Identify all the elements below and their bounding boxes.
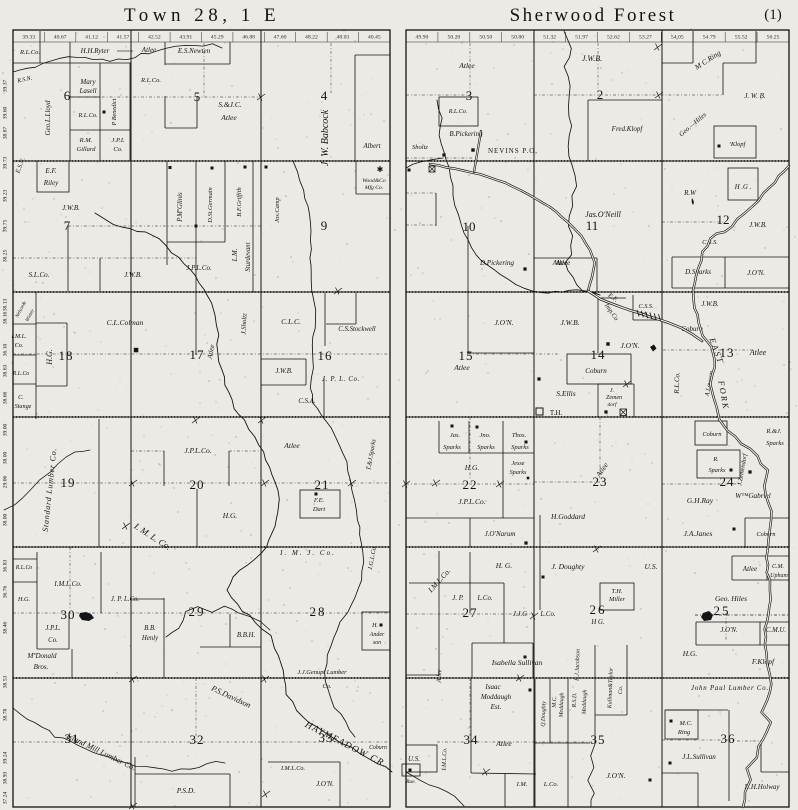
- svg-text:I.M.: I.M.: [516, 781, 528, 788]
- svg-text:Coburn: Coburn: [585, 367, 607, 375]
- svg-text:H.G.: H.G.: [17, 596, 30, 603]
- svg-text:B.Pickering: B.Pickering: [449, 130, 483, 138]
- svg-text:9: 9: [321, 218, 328, 233]
- svg-text:Town 28, 1 E: Town 28, 1 E: [124, 5, 280, 26]
- svg-text:Dart: Dart: [312, 506, 325, 513]
- svg-text:L.Co.: L.Co.: [476, 595, 492, 602]
- svg-text:38.63: 38.63: [3, 365, 9, 378]
- svg-text:S.L.Co.: S.L.Co.: [29, 271, 50, 279]
- svg-text:54.79: 54.79: [703, 35, 716, 41]
- svg-text:John Paul Lumber Co.: John Paul Lumber Co.: [691, 685, 769, 692]
- svg-text:J. Doughty: J. Doughty: [552, 562, 586, 571]
- svg-text:7: 7: [64, 218, 71, 233]
- svg-text:J.W.B.: J.W.B.: [275, 368, 293, 375]
- svg-text:L.Co.: L.Co.: [543, 781, 559, 788]
- svg-text:I. M. J. Co.: I. M. J. Co.: [279, 549, 336, 557]
- svg-text:J.O'N.: J.O'N.: [747, 269, 765, 277]
- svg-text:Atlee: Atlee: [458, 61, 475, 70]
- svg-text:36.10: 36.10: [3, 344, 9, 357]
- svg-text:J.W.B.: J.W.B.: [582, 54, 602, 63]
- svg-text:50.50: 50.50: [479, 35, 492, 41]
- svg-text:16: 16: [318, 348, 333, 363]
- svg-text:H.Goddard: H.Goddard: [550, 512, 585, 521]
- svg-text:Co.: Co.: [618, 686, 624, 695]
- svg-text:Gillard: Gillard: [77, 146, 97, 153]
- svg-text:48.22: 48.22: [305, 35, 318, 41]
- svg-text:I.M.L.Co.: I.M.L.Co.: [442, 747, 449, 772]
- svg-text:Stange: Stange: [15, 403, 32, 410]
- svg-text:R.&J.: R.&J.: [765, 428, 782, 435]
- svg-text:Miller: Miller: [608, 596, 625, 603]
- svg-text:Jesse: Jesse: [511, 460, 524, 467]
- svg-text:Rue.: Rue.: [405, 779, 416, 785]
- svg-text:R.M.: R.M.: [79, 137, 93, 144]
- svg-text:J.O'Narum: J.O'Narum: [485, 530, 516, 538]
- svg-text:Henly: Henly: [141, 635, 159, 642]
- svg-text:36: 36: [721, 731, 736, 746]
- svg-text:43.91: 43.91: [179, 35, 192, 41]
- svg-text:38.00: 38.00: [3, 452, 9, 465]
- svg-text:J.O'N.: J.O'N.: [620, 341, 639, 350]
- svg-text:H. G.: H. G.: [495, 561, 513, 570]
- svg-text:Atlee: Atlee: [453, 363, 470, 372]
- svg-text:J.W.B.: J.W.B.: [749, 221, 767, 229]
- svg-text:17: 17: [190, 347, 205, 362]
- svg-text:C.L.Colman: C.L.Colman: [107, 318, 144, 327]
- svg-text:D.St.Germain: D.St.Germain: [207, 187, 214, 224]
- svg-text:P Benedict: P Benedict: [111, 98, 118, 126]
- svg-text:H.G.: H.G.: [464, 463, 480, 472]
- svg-text:49.90: 49.90: [416, 35, 429, 41]
- svg-text:40.67: 40.67: [54, 35, 67, 41]
- svg-text:Isaac: Isaac: [484, 683, 501, 691]
- svg-text:I.M.L.Co.: I.M.L.Co.: [53, 580, 81, 588]
- svg-text:53.27: 53.27: [639, 35, 652, 41]
- svg-text:C.M.: C.M.: [772, 564, 784, 570]
- svg-text:J. W. B.: J. W. B.: [744, 92, 766, 100]
- svg-text:J.J.G: J.J.G: [513, 611, 527, 618]
- svg-text:38.66: 38.66: [3, 392, 9, 405]
- svg-text:H.G.: H.G.: [45, 349, 54, 366]
- svg-text:C.S.S.: C.S.S.: [639, 303, 654, 310]
- svg-text:Upham: Upham: [770, 573, 788, 579]
- svg-text:J.P.L: J.P.L: [112, 137, 125, 144]
- svg-text:H.G.: H.G.: [222, 511, 238, 520]
- svg-text:40.45: 40.45: [368, 35, 381, 41]
- svg-text:19: 19: [61, 475, 76, 490]
- svg-text:son: son: [373, 640, 381, 646]
- svg-text:Bros.: Bros.: [34, 663, 49, 671]
- svg-text:Meddaugh: Meddaugh: [559, 692, 566, 718]
- svg-text:Co.: Co.: [113, 146, 123, 153]
- svg-text:29: 29: [189, 604, 206, 619]
- svg-text:Jno.: Jno.: [479, 432, 490, 439]
- svg-text:18: 18: [59, 348, 74, 363]
- svg-text:35: 35: [591, 732, 606, 747]
- svg-text:Sherwood Forest: Sherwood Forest: [510, 5, 677, 26]
- svg-text:38.93: 38.93: [3, 772, 9, 785]
- svg-text:6: 6: [64, 88, 71, 103]
- svg-text:M.C.: M.C.: [679, 720, 693, 727]
- svg-text:R.W: R.W: [683, 189, 697, 197]
- svg-text:Coburn: Coburn: [369, 745, 387, 751]
- svg-text:39.73: 39.73: [3, 157, 9, 170]
- svg-text:F.Klopf: F.Klopf: [751, 657, 775, 666]
- svg-text:Ring: Ring: [677, 729, 691, 736]
- svg-text:3: 3: [466, 88, 473, 103]
- svg-text:36.83: 36.83: [3, 560, 9, 573]
- svg-text:I.M.L.Co.: I.M.L.Co.: [280, 765, 305, 772]
- svg-text:Riley: Riley: [43, 179, 59, 187]
- svg-text:Coburn: Coburn: [757, 531, 776, 538]
- svg-text:Atlee: Atlee: [749, 348, 767, 357]
- svg-text:J.Sholtz: J.Sholtz: [240, 313, 248, 335]
- svg-text:Atlee: Atlee: [220, 113, 237, 122]
- svg-text:Wood&Co: Wood&Co: [362, 178, 386, 184]
- svg-text:Isabella Sullivan: Isabella Sullivan: [491, 658, 543, 667]
- svg-text:dorf: dorf: [608, 401, 618, 408]
- svg-text:10: 10: [463, 219, 476, 234]
- svg-text:C.M.U.: C.M.U.: [766, 627, 787, 634]
- svg-text:R.L.Co.: R.L.Co.: [448, 109, 468, 115]
- svg-text:Geo.L.Lloyd: Geo.L.Lloyd: [44, 100, 52, 136]
- svg-text:I.M.L.: I.M.L.: [10, 333, 26, 340]
- svg-text:56.25: 56.25: [767, 35, 780, 41]
- svg-text:J.P.L.Co.: J.P.L.Co.: [184, 446, 211, 455]
- svg-text:Albert: Albert: [363, 143, 382, 150]
- svg-text:U.S.: U.S.: [645, 562, 658, 571]
- svg-text:J. P. L. Co.: J. P. L. Co.: [322, 376, 360, 383]
- svg-text:26: 26: [590, 602, 607, 617]
- svg-text:J.O'N.: J.O'N.: [494, 318, 513, 327]
- svg-text:MºDonald: MºDonald: [26, 652, 57, 660]
- svg-text:Sparks: Sparks: [511, 444, 529, 451]
- svg-text:31: 31: [65, 731, 80, 746]
- svg-text:R.L.Co.: R.L.Co.: [673, 372, 682, 395]
- svg-text:23: 23: [593, 474, 608, 489]
- svg-text:30: 30: [61, 607, 76, 622]
- svg-text:J.W.B.: J.W.B.: [124, 271, 142, 279]
- svg-text:48.03: 48.03: [336, 35, 349, 41]
- svg-text:52.62: 52.62: [607, 35, 620, 41]
- svg-text:B.J.Jacobson: B.J.Jacobson: [574, 649, 581, 681]
- svg-text:38.53: 38.53: [3, 676, 9, 689]
- svg-text:B.B.H.: B.B.H.: [237, 632, 256, 639]
- svg-text:L.Co.: L.Co.: [539, 611, 555, 618]
- svg-text:14: 14: [591, 347, 606, 362]
- svg-text:E.S.Newten: E.S.Newten: [177, 47, 211, 55]
- svg-text:J.W.B.: J.W.B.: [701, 301, 719, 308]
- svg-text:C.S.Stockwell: C.S.Stockwell: [338, 326, 375, 333]
- svg-text:S.&J.C.: S.&J.C.: [218, 100, 242, 109]
- svg-text:38.78: 38.78: [3, 709, 9, 722]
- svg-text:47.60: 47.60: [274, 35, 287, 41]
- svg-text:J.P.L.Co.: J.P.L.Co.: [458, 497, 485, 506]
- svg-text:45.29: 45.29: [211, 35, 224, 41]
- svg-text:J.J.Genupt Lumber: J.J.Genupt Lumber: [297, 669, 347, 676]
- svg-text:H.: H.: [371, 623, 378, 629]
- svg-text:Atlee: Atlee: [283, 441, 300, 450]
- svg-text:28: 28: [310, 604, 327, 619]
- svg-text:J.P.L.Co.: J.P.L.Co.: [186, 264, 212, 272]
- svg-text:36.76: 36.76: [3, 586, 9, 599]
- svg-text:Sholtz: Sholtz: [412, 144, 428, 151]
- svg-text:J. W. Babcock: J. W. Babcock: [320, 109, 331, 166]
- svg-text:Atlee: Atlee: [555, 259, 570, 267]
- svg-text:T.H.: T.H.: [612, 588, 623, 595]
- svg-text:E.F.: E.F.: [44, 167, 56, 175]
- svg-text:Sparks: Sparks: [443, 444, 461, 451]
- svg-text:Coburn: Coburn: [703, 431, 722, 438]
- svg-text:Lasell: Lasell: [78, 87, 96, 95]
- svg-text:F.E.: F.E.: [313, 497, 325, 504]
- svg-text:NEVINS P.O.: NEVINS P.O.: [488, 147, 538, 155]
- svg-text:J.O'N.: J.O'N.: [316, 780, 334, 788]
- svg-text:38.13: 38.13: [3, 299, 9, 312]
- svg-text:J.W.B.: J.W.B.: [560, 318, 579, 327]
- svg-text:Thos.: Thos.: [512, 432, 527, 439]
- svg-text:Zemen: Zemen: [606, 395, 622, 401]
- svg-text:24: 24: [720, 474, 735, 489]
- svg-text:Mfg Co.: Mfg Co.: [364, 184, 383, 191]
- svg-text:22: 22: [463, 477, 478, 492]
- svg-text:38.87: 38.87: [3, 127, 9, 140]
- svg-text:B.B.: B.B.: [144, 625, 156, 632]
- svg-text:21: 21: [315, 477, 330, 492]
- svg-text:M.C.: M.C.: [552, 696, 558, 709]
- svg-text:38.25: 38.25: [3, 250, 9, 263]
- svg-text:C.L.C.: C.L.C.: [281, 317, 301, 326]
- svg-text:Mary: Mary: [79, 78, 96, 86]
- svg-text:Sparks: Sparks: [766, 440, 784, 447]
- svg-text:Sparks: Sparks: [477, 444, 495, 451]
- svg-text:H.H.Ryter: H.H.Ryter: [80, 47, 110, 55]
- svg-text:Atlee: Atlee: [436, 669, 444, 684]
- svg-text:39.37: 39.37: [3, 80, 9, 93]
- svg-text:Est.: Est.: [490, 703, 502, 711]
- svg-text:55.52: 55.52: [735, 35, 748, 41]
- svg-text:R.L.Co: R.L.Co: [15, 565, 33, 571]
- svg-text:2: 2: [597, 87, 604, 102]
- svg-text:H.G.: H.G.: [682, 649, 698, 658]
- svg-text:Co.: Co.: [15, 342, 24, 349]
- svg-text:Ander: Ander: [369, 632, 385, 638]
- svg-text:R.L.Co.: R.L.Co.: [19, 49, 40, 56]
- svg-text:J.W.B.: J.W.B.: [62, 204, 80, 212]
- svg-text:J.L.Sullivan: J.L.Sullivan: [682, 753, 716, 761]
- svg-text:J.O'N.: J.O'N.: [606, 771, 625, 780]
- svg-text:Atlee: Atlee: [141, 46, 156, 54]
- svg-text:Sparks: Sparks: [510, 469, 527, 476]
- svg-text:38.16: 38.16: [3, 312, 9, 325]
- svg-text:39.24: 39.24: [3, 752, 9, 765]
- svg-text:39.23: 39.23: [3, 190, 9, 203]
- svg-text:32: 32: [190, 732, 205, 747]
- svg-text:J. P.: J. P.: [452, 595, 464, 602]
- svg-text:R.L.Co.: R.L.Co.: [140, 77, 161, 84]
- svg-text:G.H.Ray: G.H.Ray: [687, 496, 714, 505]
- svg-text:J.O'N.: J.O'N.: [720, 627, 738, 634]
- svg-text:R.S.D.: R.S.D.: [572, 692, 579, 708]
- svg-text:J. P. L.Co.: J. P. L.Co.: [111, 596, 140, 603]
- svg-text:S.Ellis: S.Ellis: [556, 389, 575, 398]
- svg-text:J.A.Janes: J.A.Janes: [684, 529, 713, 538]
- svg-text:B.F.Griffith: B.F.Griffith: [236, 187, 243, 216]
- svg-text:R.: R.: [712, 456, 718, 463]
- svg-text:38.00: 38.00: [3, 514, 9, 527]
- svg-text:39.00: 39.00: [3, 424, 9, 437]
- svg-text:4: 4: [321, 88, 328, 103]
- svg-text:51.32: 51.32: [543, 35, 556, 41]
- svg-text:41.12: 41.12: [85, 35, 98, 41]
- svg-text:R.L.Co.: R.L.Co.: [77, 112, 97, 119]
- svg-text:U.S.: U.S.: [408, 755, 420, 763]
- svg-text:P.MºGlinis: P.MºGlinis: [177, 192, 184, 223]
- svg-text:H .G .: H .G .: [734, 184, 752, 191]
- svg-text:Atlee: Atlee: [742, 565, 757, 573]
- svg-text:41.57: 41.57: [117, 35, 130, 41]
- svg-text:27: 27: [463, 605, 478, 620]
- svg-text:38.46: 38.46: [3, 622, 9, 635]
- svg-text:Co.: Co.: [48, 637, 58, 644]
- svg-text:Sturdevant: Sturdevant: [245, 241, 252, 271]
- svg-text:29.06: 29.06: [3, 476, 9, 489]
- svg-text:39.33: 39.33: [22, 35, 35, 41]
- svg-text:Jos.Camp: Jos.Camp: [274, 197, 281, 222]
- svg-text:Geo. Hiles: Geo. Hiles: [715, 594, 747, 603]
- svg-text:15: 15: [459, 348, 474, 363]
- svg-text:50.80: 50.80: [511, 35, 524, 41]
- svg-text:11: 11: [586, 218, 599, 233]
- svg-text:’Klopf: ’Klopf: [729, 141, 747, 148]
- svg-text:37.24: 37.24: [3, 792, 9, 805]
- svg-text:46.88: 46.88: [242, 35, 255, 41]
- svg-text:J.: J.: [610, 388, 614, 394]
- svg-text:C.: C.: [18, 394, 24, 401]
- svg-text:5: 5: [194, 89, 201, 104]
- svg-text:Q.Doughty: Q.Doughty: [541, 701, 548, 727]
- svg-text:P.S.D.: P.S.D.: [176, 786, 196, 795]
- svg-text:Atlee: Atlee: [495, 739, 512, 748]
- svg-text:42.52: 42.52: [148, 35, 161, 41]
- svg-text:Moddaugh: Moddaugh: [480, 693, 512, 701]
- svg-text:T.H.: T.H.: [550, 409, 563, 417]
- svg-text:H G.: H G.: [590, 619, 605, 626]
- svg-text:12: 12: [717, 212, 730, 227]
- svg-text:J.P.L.: J.P.L.: [45, 625, 60, 632]
- svg-text:Jas.: Jas.: [450, 432, 461, 439]
- svg-text:25: 25: [714, 603, 731, 618]
- svg-text:Meddaugh: Meddaugh: [582, 689, 589, 715]
- svg-text:51.97: 51.97: [575, 35, 588, 41]
- svg-text:20: 20: [190, 477, 205, 492]
- svg-text:39.60: 39.60: [3, 107, 9, 120]
- svg-text:Sparks: Sparks: [709, 467, 726, 474]
- svg-text:50.20: 50.20: [447, 35, 460, 41]
- svg-text:✱: ✱: [377, 165, 384, 174]
- svg-text:L.M.: L.M.: [232, 248, 239, 262]
- svg-text:R.L.Co: R.L.Co: [12, 371, 30, 377]
- svg-text:Fred.Klopf: Fred.Klopf: [611, 125, 644, 133]
- svg-text:(1): (1): [764, 7, 782, 23]
